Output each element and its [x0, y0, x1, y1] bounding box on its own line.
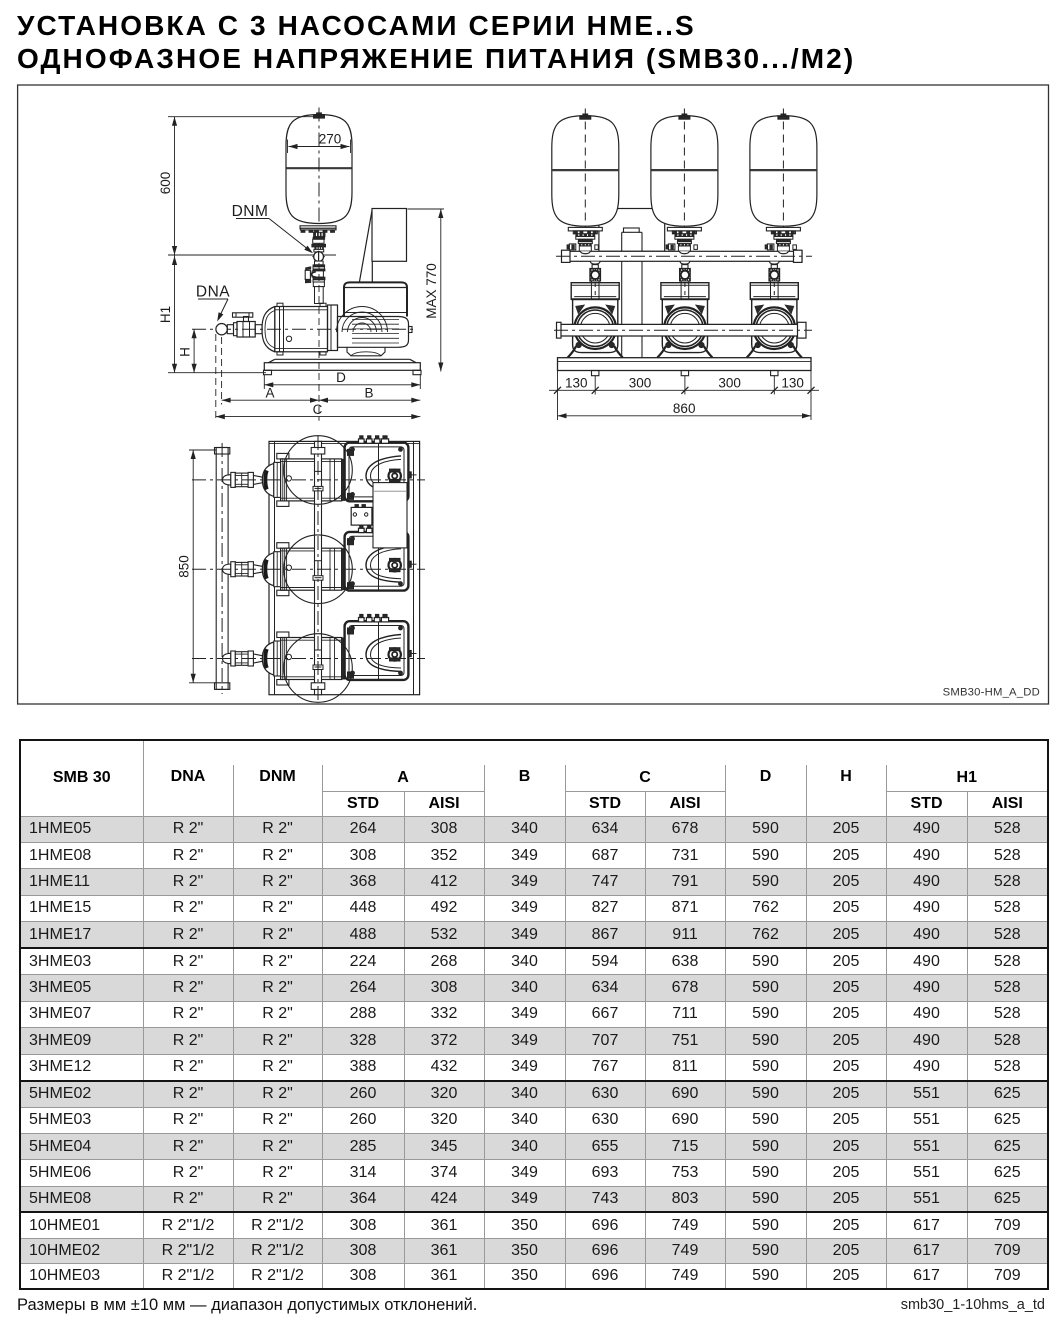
svg-text:860: 860 — [673, 401, 696, 416]
svg-text:SMB30-HM_A_DD: SMB30-HM_A_DD — [943, 687, 1040, 699]
svg-text:DNA: DNA — [196, 284, 230, 301]
svg-text:H1: H1 — [158, 306, 173, 323]
svg-text:850: 850 — [177, 555, 192, 578]
svg-text:MAX 770: MAX 770 — [424, 263, 439, 319]
svg-text:B: B — [364, 386, 373, 401]
svg-text:130: 130 — [565, 375, 588, 390]
svg-text:300: 300 — [718, 375, 741, 390]
svg-text:600: 600 — [158, 172, 173, 195]
svg-text:300: 300 — [629, 375, 652, 390]
svg-text:270: 270 — [319, 132, 342, 147]
svg-text:C: C — [313, 402, 323, 417]
svg-text:130: 130 — [781, 375, 804, 390]
svg-text:D: D — [336, 370, 346, 385]
svg-text:DNM: DNM — [232, 203, 269, 220]
svg-text:H: H — [178, 347, 193, 357]
svg-text:A: A — [265, 386, 274, 401]
